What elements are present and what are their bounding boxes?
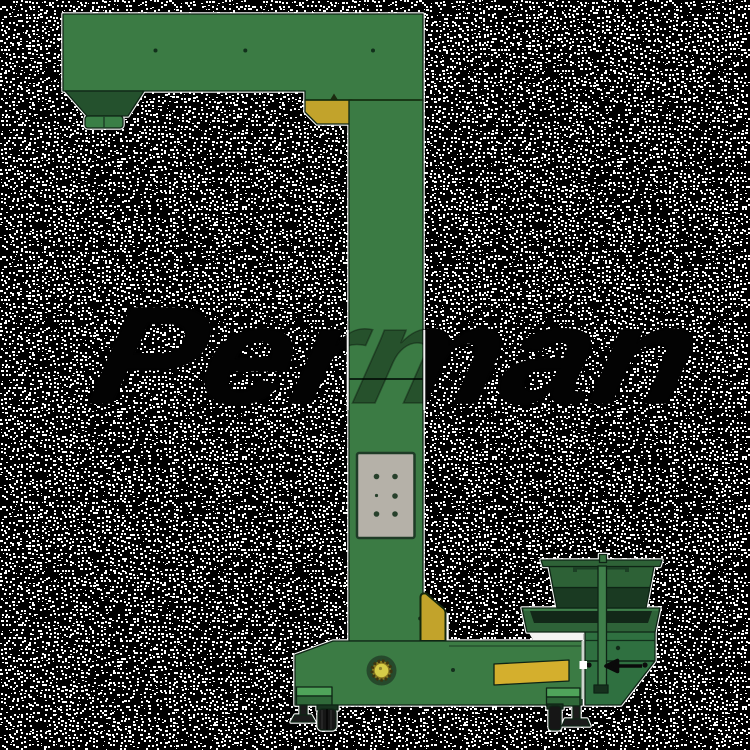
svg-text:Perman: Perman [80,278,713,432]
